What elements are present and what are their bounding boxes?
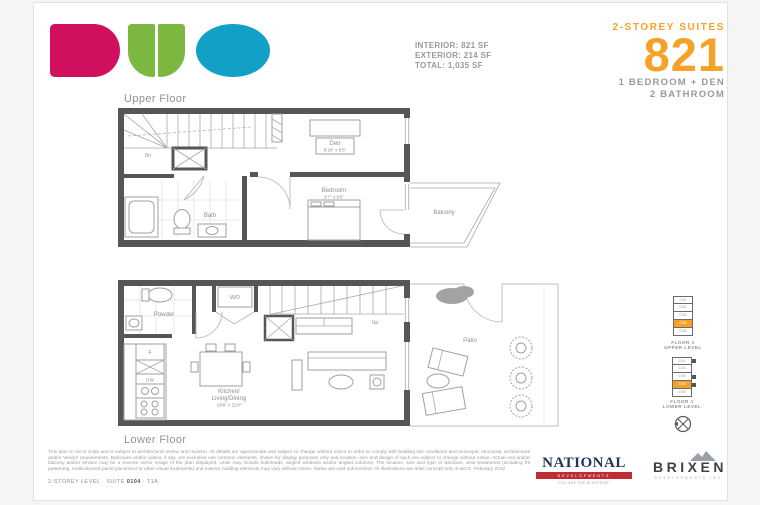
keyplan-upper-unit-1: 0101 — [673, 296, 693, 304]
washer-dryer-closet: W/D — [216, 287, 254, 324]
keyplan-upper-unit-5: 0105 — [673, 328, 693, 336]
duo-logo — [50, 23, 260, 79]
national-logo-tagline: “YOU ARE THE BLUEPRINT” — [536, 481, 632, 485]
patio-label: Patio — [463, 338, 477, 344]
suite-reference-line: 2-STOREY LEVEL · SUITE 0104 · T1A — [48, 479, 158, 485]
den-desk — [310, 120, 360, 136]
logo-letter-o — [196, 24, 270, 77]
keyplan-upper: 0101 0102 0103 0104 0105 — [673, 296, 693, 336]
keyplan-lower-unit-2: 0102 — [672, 365, 692, 373]
keyplan-balcony-bump — [692, 383, 696, 387]
patio-area: Patio — [410, 284, 558, 426]
config-line-1: 1 BEDROOM + DEN — [505, 77, 725, 89]
keyplan-lower: 0101 0102 0103 0104 0105 — [672, 357, 692, 397]
stairs-dn-label: Dn — [145, 153, 152, 159]
bedroom-label: Bedroom — [322, 188, 346, 194]
hall-closets — [265, 316, 352, 340]
stove — [136, 398, 164, 418]
keyplan-balcony-bump — [692, 375, 696, 379]
area-stats: INTERIOR: 821 SF EXTERIOR: 214 SF TOTAL:… — [415, 41, 491, 71]
keyplan-lower-unit-3: 0103 — [672, 373, 692, 381]
keyplan-balcony-bump — [692, 359, 696, 363]
kitchen-dims: 19'8" x 11'8" — [217, 403, 242, 408]
keyplan-lower-unit-5: 0105 — [672, 389, 692, 397]
keyplan-upper-unit-4-highlighted: 0104 — [673, 320, 693, 328]
config-line-2: 2 BATHROOM — [505, 89, 725, 101]
den-label: Den — [329, 141, 340, 147]
logo-letter-u-left — [128, 24, 155, 77]
coffee-table — [329, 375, 353, 389]
bath-label: Bath — [204, 213, 216, 219]
brixen-logo-sub: DEVELOPMENTS INC. — [644, 476, 736, 480]
national-logo-name: NATIONAL — [536, 456, 632, 471]
total-area: TOTAL: 1,035 SF — [415, 61, 491, 71]
dining-table — [200, 352, 242, 386]
powder-room: Powder — [124, 286, 222, 338]
floorplan-page: INTERIOR: 821 SF EXTERIOR: 214 SF TOTAL:… — [0, 0, 760, 505]
keyplan-upper-unit-2: 0102 — [673, 304, 693, 312]
dw-label: DW — [146, 378, 154, 383]
keyplan-lower-unit-1: 0101 — [672, 357, 692, 365]
shaft-box — [173, 148, 206, 169]
national-logo-band: DEVELOPMENTS — [536, 472, 632, 479]
lounge-chair-2 — [422, 387, 465, 416]
lower-floor-title: Lower Floor — [124, 434, 186, 446]
kitchen-label-2: Living/Dining — [212, 396, 246, 402]
patio-table — [427, 374, 449, 388]
keyplan-upper-unit-3: 0103 — [673, 312, 693, 320]
den-area: Den 8'10" x 8'5" — [258, 114, 360, 209]
balcony-label: Balcony — [433, 210, 454, 216]
kitchen-label-1: Kitchen/ — [218, 389, 240, 395]
toilet — [174, 210, 190, 229]
brixen-logo-name: BRIXEN — [644, 460, 736, 474]
compass-icon — [673, 414, 693, 434]
bath-sink-vanity — [198, 224, 226, 237]
keyplan-lower-label: FLOOR 1 LOWER LEVEL — [647, 399, 717, 410]
brixen-logo: BRIXEN DEVELOPMENTS INC. — [644, 451, 736, 480]
suite-number: 821 — [505, 33, 725, 77]
interior-area: INTERIOR: 821 SF — [415, 41, 491, 51]
suite-header: 2-STOREY SUITES 821 1 BEDROOM + DEN 2 BA… — [505, 22, 725, 101]
keyplan-upper-label: FLOOR 1 UPPER LEVEL — [648, 340, 718, 351]
lounge-chair-1 — [428, 348, 468, 376]
dining-area: Kitchen/ Living/Dining 19'8" x 11'8" — [191, 344, 250, 408]
upper-floor-plan: Dn Den 8'10" x 8'5" Bedroom 9'7" x 9'6" — [112, 100, 532, 252]
logo-letter-d — [50, 24, 120, 77]
balcony-area: Balcony — [410, 183, 500, 247]
national-logo: NATIONAL DEVELOPMENTS “YOU ARE THE BLUEP… — [536, 456, 632, 485]
living-area — [292, 352, 386, 390]
lower-floor-plan: Powder W/D Up — [112, 272, 572, 432]
fridge-label: F — [148, 350, 151, 356]
legal-disclaimer: This plan is not to scale and is subject… — [48, 450, 530, 473]
shrub-3 — [510, 395, 532, 417]
kitchen-sink — [136, 384, 164, 398]
shrub-1 — [510, 337, 532, 359]
powder-toilet — [148, 288, 172, 302]
powder-sink — [126, 316, 142, 330]
bedroom-dims: 9'7" x 9'6" — [324, 195, 344, 200]
sofa — [308, 352, 386, 370]
keyplan-lower-unit-4-highlighted: 0104 — [672, 381, 692, 389]
bath-area: Bath — [125, 176, 240, 238]
tv-console — [292, 360, 302, 390]
kitchen-counter: F DW — [124, 344, 166, 420]
bedroom-area: Bedroom 9'7" x 9'6" — [308, 188, 404, 240]
wd-label: W/D — [230, 295, 240, 301]
den-dims: 8'10" x 8'5" — [324, 148, 347, 153]
exterior-area: EXTERIOR: 214 SF — [415, 51, 491, 61]
shrub-2 — [510, 367, 532, 389]
side-table — [370, 375, 384, 389]
powder-label: Powder — [154, 312, 174, 318]
logo-letter-u-right — [158, 24, 185, 77]
stairs-up-label: Up — [372, 320, 379, 326]
